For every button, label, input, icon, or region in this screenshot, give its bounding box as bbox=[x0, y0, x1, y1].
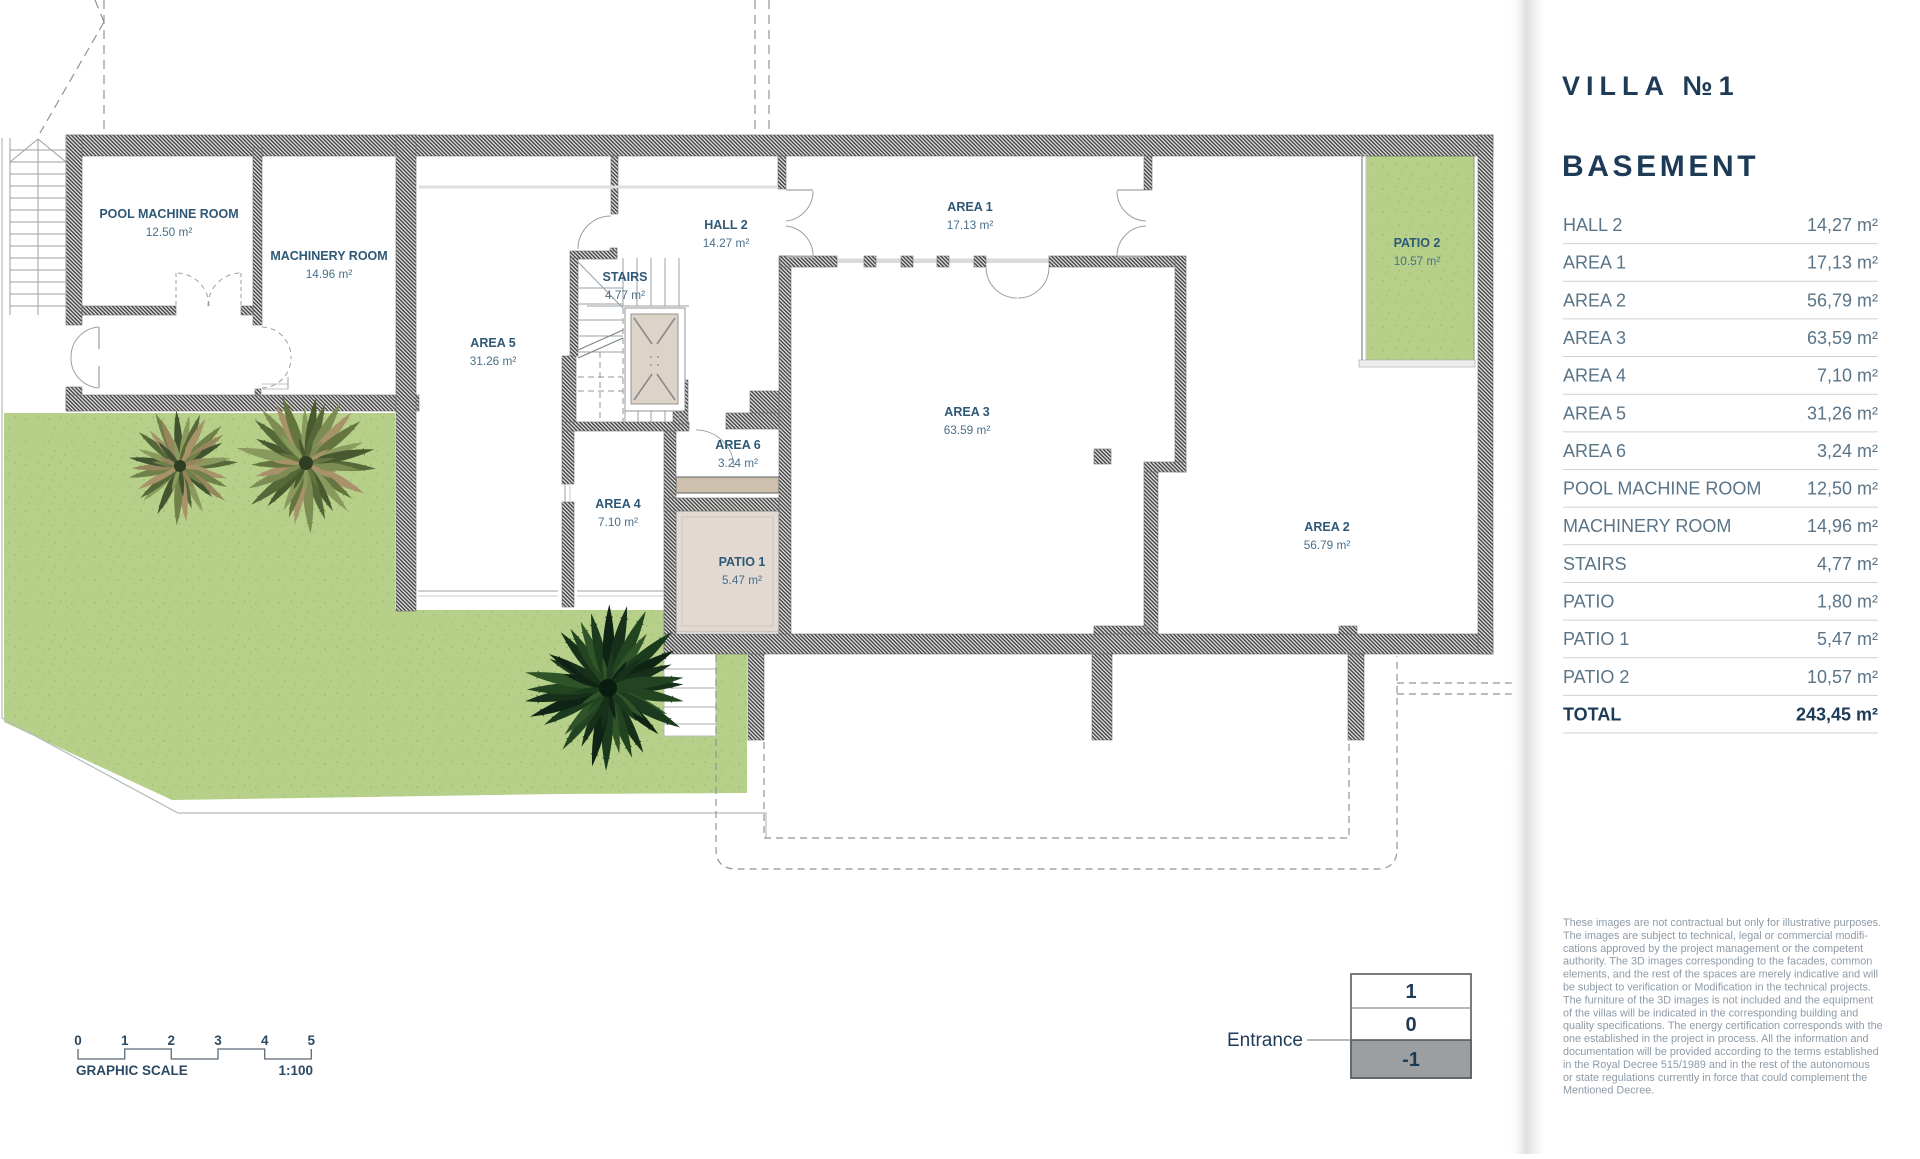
svg-text:5,47 m²: 5,47 m² bbox=[1817, 629, 1878, 649]
svg-text:MACHINERY ROOM: MACHINERY ROOM bbox=[270, 249, 387, 263]
svg-text:GRAPHIC SCALE: GRAPHIC SCALE bbox=[76, 1063, 188, 1078]
svg-text:AREA 5: AREA 5 bbox=[1563, 403, 1626, 423]
svg-text:10,57 m²: 10,57 m² bbox=[1807, 667, 1878, 687]
svg-text:Entrance: Entrance bbox=[1227, 1030, 1303, 1051]
svg-text:AREA 5: AREA 5 bbox=[470, 336, 515, 350]
svg-text:14.96 m²: 14.96 m² bbox=[306, 267, 353, 281]
svg-text:17.13 m²: 17.13 m² bbox=[947, 218, 994, 232]
svg-text:VILLA №1: VILLA №1 bbox=[1562, 71, 1740, 101]
svg-text:AREA 1: AREA 1 bbox=[1563, 253, 1626, 273]
svg-text:63,59 m²: 63,59 m² bbox=[1807, 328, 1878, 348]
svg-text:AREA 1: AREA 1 bbox=[947, 200, 992, 214]
svg-text:31,26 m²: 31,26 m² bbox=[1807, 403, 1878, 423]
svg-text:14,96 m²: 14,96 m² bbox=[1807, 516, 1878, 536]
svg-text:7,10 m²: 7,10 m² bbox=[1817, 366, 1878, 386]
svg-text:0: 0 bbox=[1405, 1014, 1416, 1036]
svg-text:elements, and the rest of the: elements, and the rest of the spaces are… bbox=[1563, 969, 1878, 981]
svg-text:These images are not contractu: These images are not contractual but onl… bbox=[1563, 917, 1881, 929]
svg-text:3.24 m²: 3.24 m² bbox=[718, 456, 758, 470]
svg-text:TOTAL: TOTAL bbox=[1563, 704, 1621, 724]
svg-text:BASEMENT: BASEMENT bbox=[1562, 150, 1759, 183]
svg-text:or state regulations currently: or state regulations currently in force … bbox=[1563, 1072, 1867, 1084]
svg-text:63.59 m²: 63.59 m² bbox=[944, 423, 991, 437]
svg-text:1: 1 bbox=[121, 1033, 129, 1048]
svg-text:14.27 m²: 14.27 m² bbox=[703, 236, 750, 250]
svg-text:The images are subject to tech: The images are subject to technical, leg… bbox=[1563, 930, 1868, 942]
svg-text:31.26 m²: 31.26 m² bbox=[470, 354, 517, 368]
svg-text:HALL 2: HALL 2 bbox=[704, 218, 748, 232]
svg-text:HALL 2: HALL 2 bbox=[1563, 215, 1622, 235]
svg-text:2: 2 bbox=[168, 1033, 176, 1048]
svg-text:AREA 4: AREA 4 bbox=[595, 497, 640, 511]
svg-text:PATIO: PATIO bbox=[1563, 592, 1614, 612]
svg-text:AREA 3: AREA 3 bbox=[944, 405, 989, 419]
svg-text:56,79 m²: 56,79 m² bbox=[1807, 290, 1878, 310]
svg-text:1: 1 bbox=[1405, 981, 1416, 1003]
svg-text:17,13 m²: 17,13 m² bbox=[1807, 253, 1878, 273]
svg-text:PATIO 2: PATIO 2 bbox=[1394, 236, 1441, 250]
svg-text:14,27 m²: 14,27 m² bbox=[1807, 215, 1878, 235]
svg-text:-1: -1 bbox=[1402, 1049, 1420, 1071]
svg-text:12,50 m²: 12,50 m² bbox=[1807, 479, 1878, 499]
svg-text:4: 4 bbox=[261, 1033, 269, 1048]
svg-text:PATIO 2: PATIO 2 bbox=[1563, 667, 1629, 687]
svg-text:12.50 m²: 12.50 m² bbox=[146, 225, 193, 239]
svg-text:The furniture of the 3D images: The furniture of the 3D images is not in… bbox=[1563, 994, 1873, 1006]
svg-text:PATIO 1: PATIO 1 bbox=[719, 555, 766, 569]
svg-text:POOL MACHINE ROOM: POOL MACHINE ROOM bbox=[99, 207, 238, 221]
svg-text:4,77 m²: 4,77 m² bbox=[1817, 554, 1878, 574]
svg-text:3,24 m²: 3,24 m² bbox=[1817, 441, 1878, 461]
svg-text:cations approved by the projec: cations approved by the project manageme… bbox=[1563, 943, 1863, 955]
svg-text:authority. The 3D images corre: authority. The 3D images corresponding t… bbox=[1563, 956, 1872, 968]
svg-text:7.10 m²: 7.10 m² bbox=[598, 515, 638, 529]
svg-text:AREA 2: AREA 2 bbox=[1304, 520, 1349, 534]
svg-text:1,80 m²: 1,80 m² bbox=[1817, 592, 1878, 612]
svg-text:in the Royal Decree 515/1989 a: in the Royal Decree 515/1989 and in the … bbox=[1563, 1059, 1870, 1071]
svg-text:AREA 4: AREA 4 bbox=[1563, 366, 1626, 386]
svg-text:0: 0 bbox=[74, 1033, 82, 1048]
svg-text:of the villas will be indicate: of the villas will be indicated in the c… bbox=[1563, 1007, 1858, 1019]
svg-text:AREA 3: AREA 3 bbox=[1563, 328, 1626, 348]
svg-text:MACHINERY ROOM: MACHINERY ROOM bbox=[1563, 516, 1731, 536]
svg-text:one established in the project: one established in the project in proces… bbox=[1563, 1033, 1869, 1045]
svg-text:5: 5 bbox=[308, 1033, 316, 1048]
svg-text:56.79 m²: 56.79 m² bbox=[1304, 538, 1351, 552]
svg-text:10.57 m²: 10.57 m² bbox=[1394, 254, 1441, 268]
svg-text:STAIRS: STAIRS bbox=[603, 270, 648, 284]
svg-text:STAIRS: STAIRS bbox=[1563, 554, 1627, 574]
svg-text:AREA 6: AREA 6 bbox=[715, 438, 760, 452]
svg-text:AREA 6: AREA 6 bbox=[1563, 441, 1626, 461]
svg-text:POOL MACHINE ROOM: POOL MACHINE ROOM bbox=[1563, 479, 1761, 499]
svg-text:1:100: 1:100 bbox=[278, 1063, 313, 1078]
svg-text:243,45 m²: 243,45 m² bbox=[1796, 704, 1878, 724]
svg-text:5.47 m²: 5.47 m² bbox=[722, 573, 762, 587]
svg-text:be subject to verification or: be subject to verification or Modificati… bbox=[1563, 982, 1871, 994]
svg-text:AREA 2: AREA 2 bbox=[1563, 290, 1626, 310]
svg-text:documentation will be provided: documentation will be provided according… bbox=[1563, 1046, 1879, 1058]
svg-text:PATIO 1: PATIO 1 bbox=[1563, 629, 1629, 649]
svg-text:quality specifications. The en: quality specifications. The energy certi… bbox=[1563, 1020, 1883, 1032]
svg-text:4.77 m²: 4.77 m² bbox=[605, 288, 645, 302]
svg-text:Mentioned Decree.: Mentioned Decree. bbox=[1563, 1085, 1654, 1097]
svg-text:3: 3 bbox=[214, 1033, 222, 1048]
